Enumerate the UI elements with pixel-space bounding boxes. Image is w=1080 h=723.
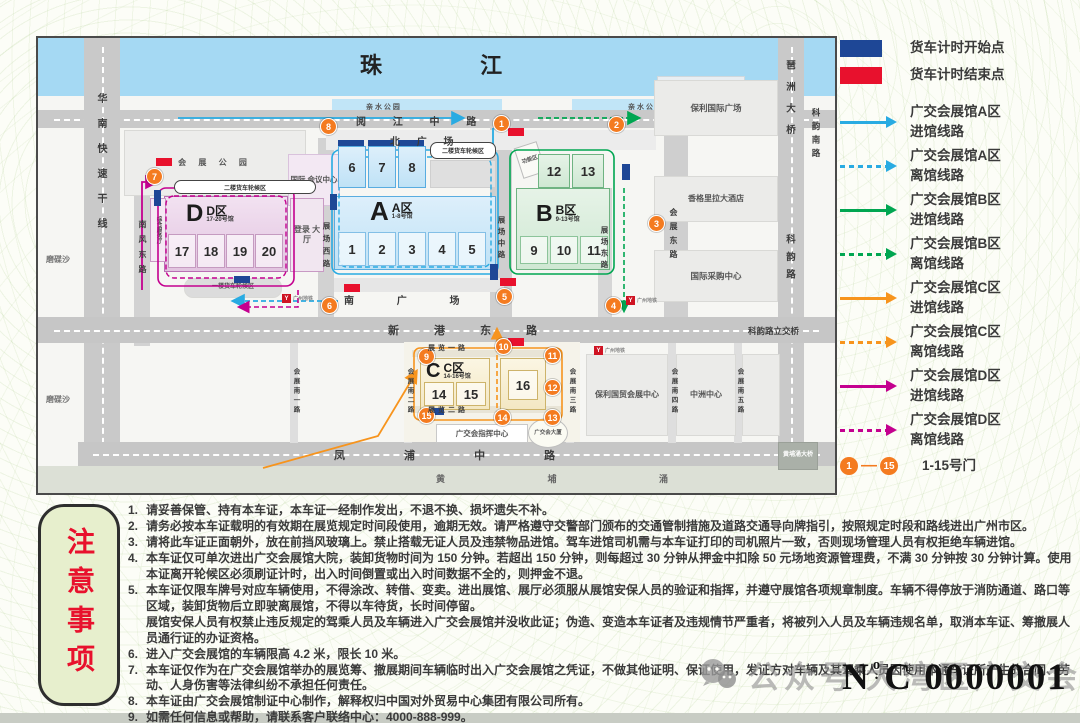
hall-20: 20: [255, 234, 283, 268]
gate-14: 14: [494, 409, 511, 426]
road-fengpu-label: 凤 浦 中 路: [334, 447, 583, 463]
road-s3-label: 会展南三路: [566, 368, 576, 416]
hall-c-title: C C区14-16号馆: [426, 361, 471, 381]
hall-19: 19: [226, 234, 254, 268]
truck-timer-end-marker: [156, 158, 172, 166]
hall-10: 10: [550, 236, 578, 264]
note-item-1: 1.请妥善保管、持有本车证，本车证一经制作发出，不退不换、损坏遗失不补。: [128, 503, 1074, 519]
legend-c-out: 广交会展馆C区离馆线路: [840, 322, 1001, 363]
road-nanfeng-label: 南风东路: [137, 220, 148, 280]
legend-truck-start: 货车计时开始点: [840, 38, 1005, 58]
hall-12: 12: [538, 154, 570, 188]
hall-6: 6: [338, 146, 366, 188]
interchange-label: 科韵路立交桥: [748, 325, 799, 337]
arrow-dashed-icon: [840, 253, 886, 257]
service-hall: 综合服务厅: [150, 198, 166, 262]
d-truck-waiting-l1: 一楼货车轮候区: [184, 278, 282, 298]
serial-number: N o . C 0000001: [842, 656, 1068, 699]
block-right-south: [742, 354, 780, 436]
hall-b-title: B B区9-13号馆: [536, 202, 580, 225]
truck-timer-start-marker: [154, 190, 161, 206]
metro-station-logo: Y广州地铁: [282, 294, 313, 303]
cf-command-center: 广交会指挥中心: [436, 424, 528, 443]
exhibition-area-map: 珠 江 亲 水 公 园 亲 水 公 园 港 澳 码 头 会 展 公 园 国际 会…: [36, 36, 837, 495]
metro-station-logo: Y广州地铁: [626, 296, 657, 305]
zhongzhou-center: 中洲中心: [676, 354, 736, 436]
huangpu-bridge-label: 黄埔涌大桥: [778, 442, 818, 470]
hall-a-title: A A区1-8号馆: [370, 198, 412, 224]
gate-range-label: 1-15号门: [922, 456, 976, 476]
hall-5: 5: [458, 232, 486, 266]
hall-d-title: D D区17-20号馆: [186, 202, 234, 226]
service-hall-label: 综合服务厅: [155, 216, 162, 244]
hall-8: 8: [398, 146, 426, 188]
north-plaza-label: 北 广 场: [390, 133, 461, 148]
hall-18: 18: [197, 234, 225, 268]
legend-c-in: 广交会展馆C区进馆线路: [840, 278, 1001, 319]
road-keyun-label: 科韵路: [782, 234, 796, 287]
gate-2: 2: [608, 116, 625, 133]
legend-a-out: 广交会展馆A区离馆线路: [840, 146, 1001, 187]
legend-d-out: 广交会展馆D区离馆线路: [840, 410, 1001, 451]
hall-9: 9: [520, 236, 548, 264]
gate-7: 7: [146, 168, 163, 185]
road-huanan-label: 华南快速干线: [93, 93, 108, 243]
arrow-solid-icon: [840, 297, 886, 301]
note-item-4: 4.本车证仅可单次进出广交会展馆大院，装卸货物时间为 150 分钟。若超出 15…: [128, 551, 1074, 583]
road-s1-label: 会展南一路: [290, 368, 300, 416]
note-item-2: 2.请务必按本车证载明的有效期在展览规定时间段使用，逾期无效。请严格遵守交警部门…: [128, 519, 1074, 535]
notes-title-badge: 注意事项: [38, 504, 120, 706]
huangpu-creek-label: 黄 埔 涌: [436, 472, 718, 485]
hall-13: 13: [572, 154, 604, 188]
note-item-3: 3.请将此车证正面朝外，放在前挡风玻璃上。禁止搭载无证人员及违禁物品进馆。驾车进…: [128, 535, 1074, 551]
arrow-solid-icon: [840, 385, 886, 389]
gate-3: 3: [648, 215, 665, 232]
gate-4: 4: [605, 297, 622, 314]
wechat-label: 公众号: [748, 652, 856, 697]
road-xingang-label: 新 港 东 路: [388, 322, 553, 338]
pearl-river-label: 珠 江: [360, 48, 548, 80]
d-truck-waiting-l2: 二楼货车轮候区: [174, 180, 316, 194]
legend-gates: 1 — 15 1-15号门: [840, 456, 976, 476]
note-item-9: 9.如需任何信息或帮助，请联系客户联络中心：4000-888-999。: [128, 710, 1074, 723]
gate-6: 6: [321, 297, 338, 314]
truck-timer-end-marker: [508, 128, 524, 136]
gate-10: 10: [495, 338, 512, 355]
vehicle-pass-back: 珠 江 亲 水 公 园 亲 水 公 园 港 澳 码 头 会 展 公 园 国际 会…: [0, 0, 1080, 723]
gate-13: 13: [544, 409, 561, 426]
legend-b-out: 广交会展馆B区离馆线路: [840, 234, 1001, 275]
south-plaza-label: 南 广 场: [344, 292, 480, 307]
wechat-icon: [698, 658, 738, 692]
arrow-dashed-icon: [840, 165, 886, 169]
hall-4: 4: [428, 232, 456, 266]
hall-2: 2: [368, 232, 396, 266]
note-item-5: 5.本车证仅限车牌号对应车辆使用，不得涂改、转借、变卖。进出展馆、展厅必须服从展…: [128, 583, 1074, 647]
legend-b-in: 广交会展馆B区进馆线路: [840, 190, 1001, 231]
road-keyun-south-label: 科韵南路: [810, 108, 822, 162]
road-s4-label: 会展南四路: [668, 368, 678, 416]
numero-sign: o .: [873, 661, 883, 680]
hall-16: 16: [508, 370, 538, 400]
truck-timer-end-marker: [500, 278, 516, 286]
road-hz-east-label: 会展东路: [668, 208, 679, 264]
poly-trade-exhibition-center: 保利国贸会展中心: [586, 354, 668, 436]
hall-17: 17: [168, 234, 196, 268]
truck-timer-start-marker: [234, 276, 250, 283]
road-zl1-label: 展览一路: [428, 343, 468, 353]
hall-3: 3: [398, 232, 426, 266]
road-zc-west-label: 展场西路: [321, 222, 332, 272]
road-zl2-label: 展览二路: [428, 405, 468, 415]
gate-11: 11: [544, 347, 561, 364]
road-zc-east-label: 展场东路: [599, 226, 610, 272]
hall-15: 15: [456, 382, 486, 406]
pazhou-bridge-label: 琶洲大桥: [782, 60, 796, 146]
gate-range-dash: —: [861, 457, 877, 475]
metro-station-logo: Y广州地铁: [594, 346, 625, 355]
modiesha-label: 磨碟沙: [46, 254, 70, 265]
hall-7: 7: [368, 146, 396, 188]
road-yuejiang-label: 阅 江 中 路: [356, 113, 488, 128]
legend-a-in: 广交会展馆A区进馆线路: [840, 102, 1001, 143]
map-legend: 货车计时开始点 货车计时结束点 广交会展馆A区进馆线路 广交会展馆A区离馆线路 …: [840, 36, 1076, 506]
a-truck-waiting-building: [430, 160, 496, 188]
truck-timer-start-marker: [490, 264, 498, 280]
gate-circle-first: 1: [840, 457, 858, 475]
truck-timer-start-marker: [330, 194, 337, 210]
legend-truck-end: 货车计时结束点: [840, 65, 1005, 85]
road-s5-label: 会展南五路: [734, 368, 744, 416]
gate-1: 1: [493, 115, 510, 132]
legend-d-in: 广交会展馆D区进馆线路: [840, 366, 1001, 407]
road-s2-label: 会展南二路: [404, 368, 414, 416]
gate-5: 5: [496, 288, 513, 305]
hall-14: 14: [424, 382, 454, 406]
login-hall: 登录 大厅: [290, 198, 324, 272]
start-swatch: [840, 40, 882, 57]
notes-title: 注意事项: [59, 527, 99, 683]
arrow-dashed-icon: [840, 429, 886, 433]
hall-1: 1: [338, 232, 366, 266]
end-swatch: [840, 67, 882, 84]
poly-international-plaza: 保利国际广场: [654, 80, 778, 136]
truck-timer-start-marker: [338, 140, 364, 146]
gate-8: 8: [320, 118, 337, 135]
modiesha-label: 磨碟沙: [46, 394, 70, 405]
arrow-solid-icon: [840, 121, 886, 125]
arrow-dashed-icon: [840, 341, 886, 345]
truck-timer-start-marker: [622, 164, 630, 180]
arrow-solid-icon: [840, 209, 886, 213]
road-zc-mid-label: 展场中路: [496, 216, 507, 262]
truck-timer-end-marker: [344, 284, 360, 292]
gate-circle-last: 15: [880, 457, 898, 475]
gate-12: 12: [544, 379, 561, 396]
